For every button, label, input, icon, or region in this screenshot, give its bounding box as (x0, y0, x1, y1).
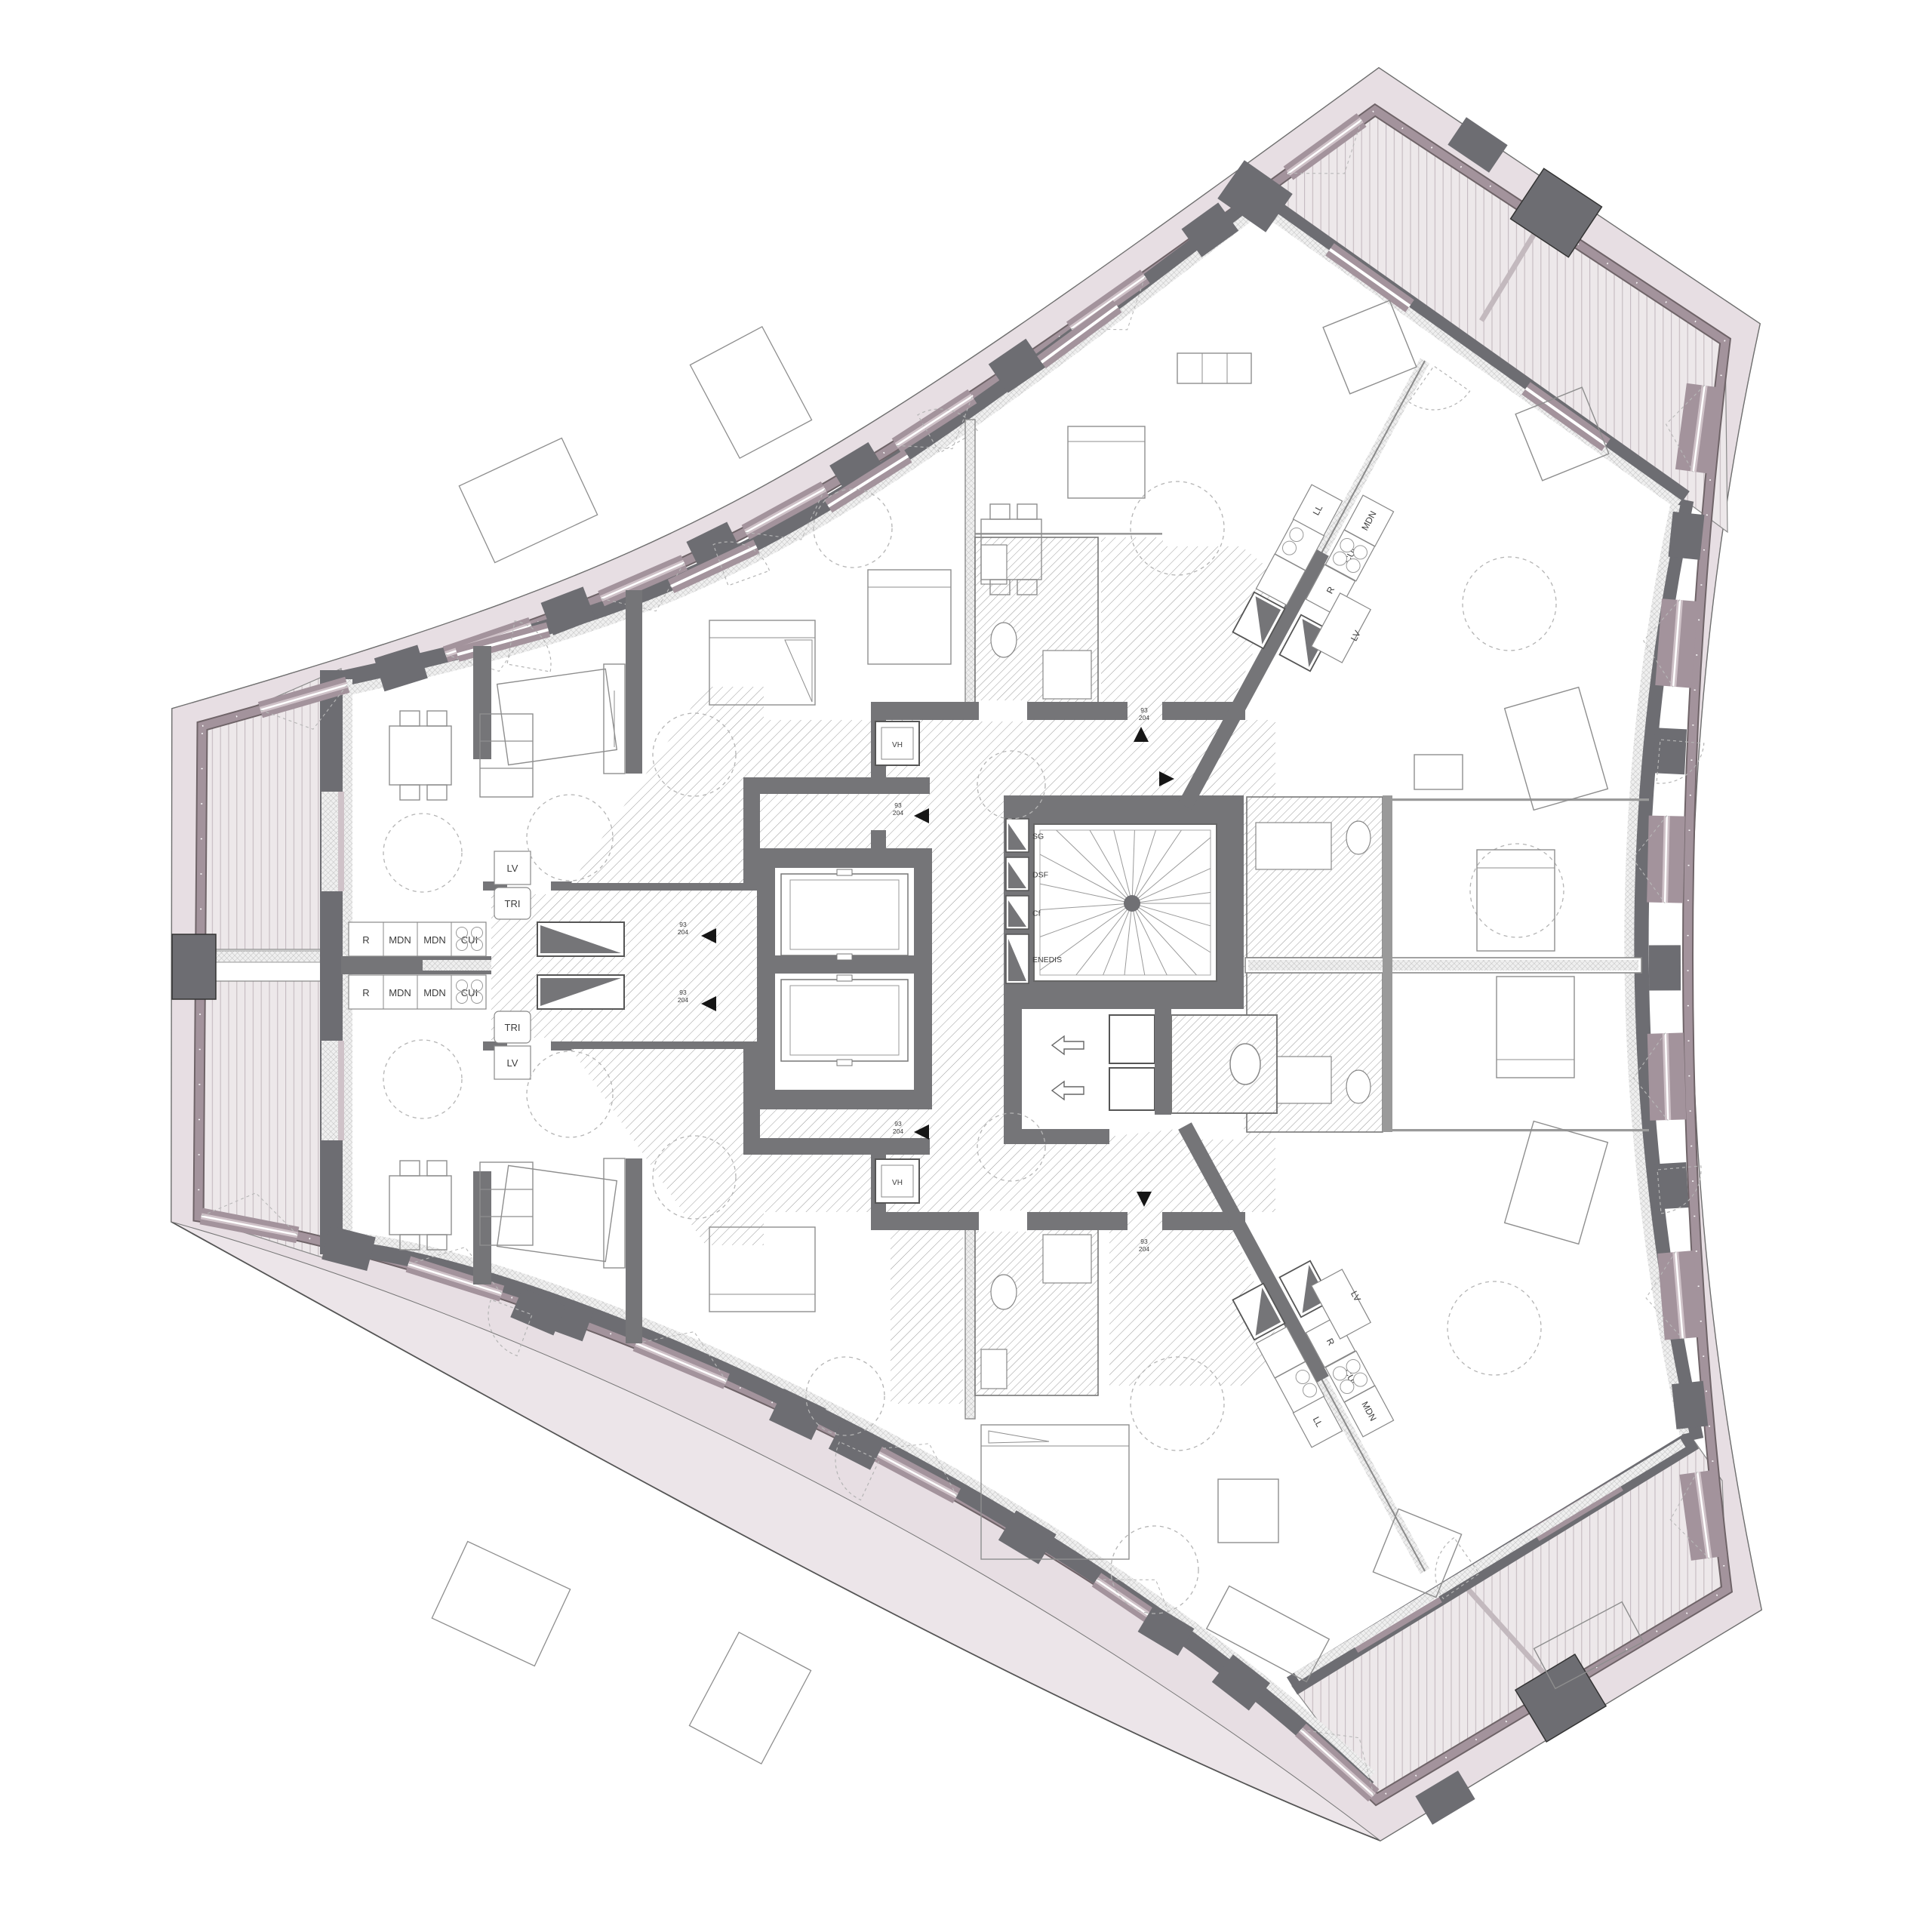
svg-text:MDN: MDN (423, 987, 446, 998)
svg-text:TRI: TRI (505, 898, 521, 909)
svg-text:MDN: MDN (389, 934, 411, 946)
svg-text:Cf: Cf (1032, 909, 1041, 918)
svg-text:ENEDIS: ENEDIS (1032, 955, 1062, 964)
svg-text:204: 204 (893, 1128, 903, 1135)
svg-text:R: R (362, 934, 369, 946)
svg-text:93: 93 (894, 801, 902, 809)
svg-text:93: 93 (1140, 1238, 1148, 1245)
svg-text:VH: VH (892, 1179, 903, 1187)
svg-text:SG: SG (1032, 832, 1044, 841)
svg-text:93: 93 (679, 921, 687, 928)
svg-text:TRI: TRI (505, 1022, 521, 1033)
svg-text:MDN: MDN (389, 987, 411, 998)
svg-text:CUI: CUI (461, 934, 478, 946)
svg-text:LV: LV (507, 863, 518, 874)
svg-text:DSF: DSF (1032, 871, 1048, 880)
svg-text:204: 204 (678, 928, 688, 936)
svg-text:204: 204 (1139, 714, 1149, 721)
svg-text:93: 93 (1140, 706, 1148, 714)
svg-text:VH: VH (892, 741, 903, 749)
svg-text:R: R (362, 987, 369, 998)
svg-text:93: 93 (679, 989, 687, 996)
svg-text:MDN: MDN (423, 934, 446, 946)
svg-text:93: 93 (894, 1120, 902, 1128)
svg-text:LV: LV (507, 1057, 518, 1069)
svg-text:204: 204 (1139, 1245, 1149, 1253)
svg-text:CUI: CUI (461, 987, 478, 998)
svg-text:204: 204 (678, 996, 688, 1004)
svg-text:204: 204 (893, 809, 903, 817)
